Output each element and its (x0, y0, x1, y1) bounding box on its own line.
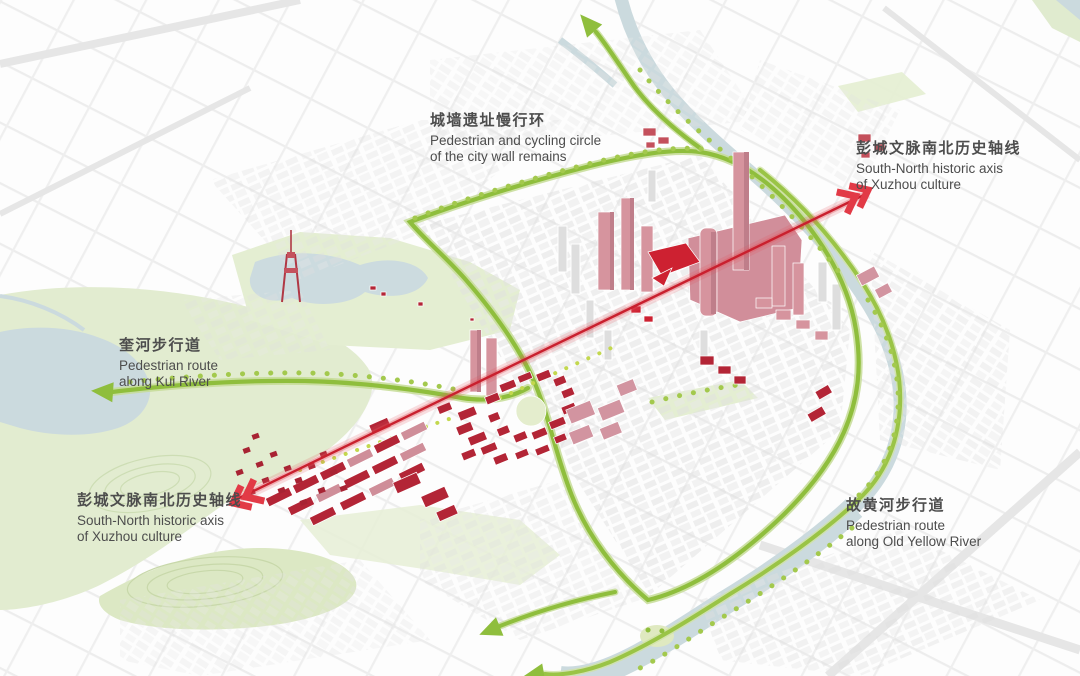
historic-courtyard (516, 396, 546, 426)
city-map-canvas (0, 0, 1080, 676)
urban-heritage-axes-diagram: 城墙遗址慢行环 Pedestrian and cycling circle of… (0, 0, 1080, 676)
